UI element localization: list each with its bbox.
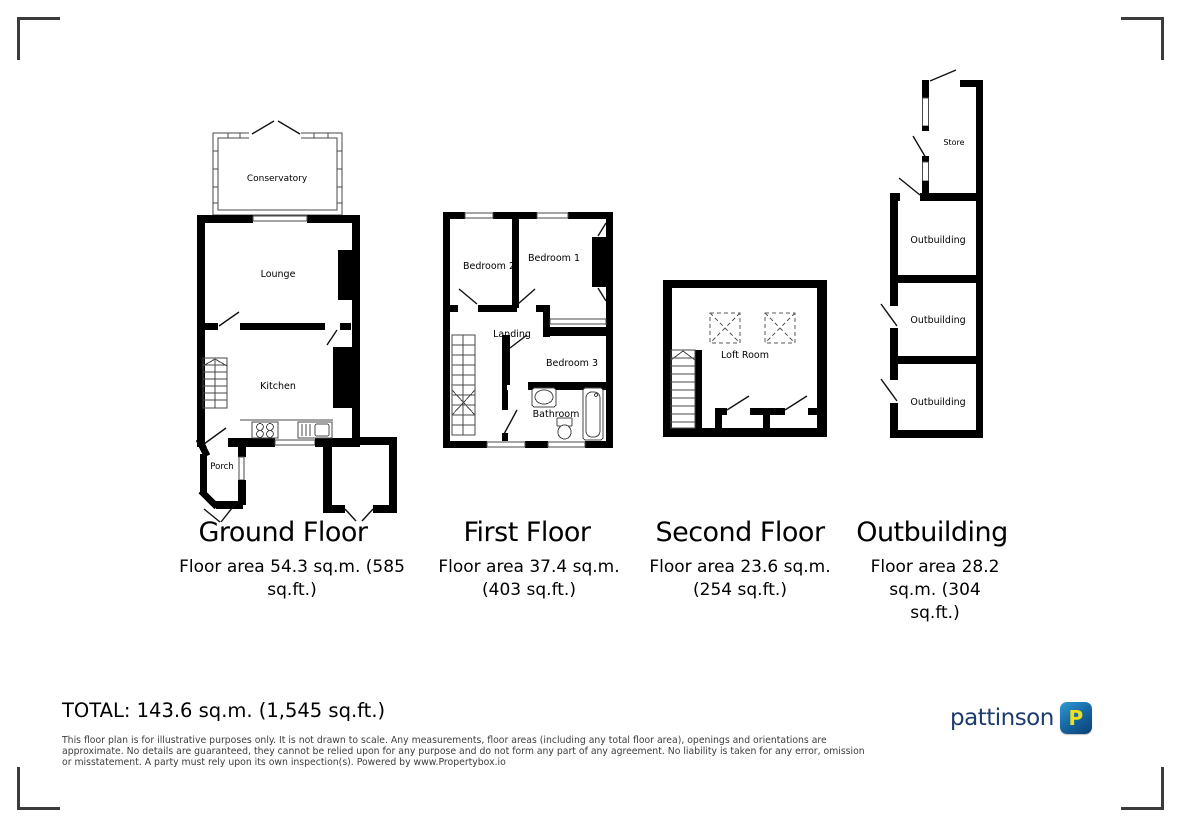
room-label: Kitchen xyxy=(260,381,296,392)
room-label: Outbuilding xyxy=(910,315,965,326)
bath-icon xyxy=(583,388,603,440)
eaves-storage-walls xyxy=(715,408,827,430)
disclaimer-text: This floor plan is for illustrative purp… xyxy=(62,735,865,768)
outbuilding-walls xyxy=(890,80,983,438)
ground-floor-area-caption: Floor area 54.3 sq.m. (585 sq.ft.) xyxy=(179,556,405,602)
ground-floor-plan: Conservatory Lounge xyxy=(190,113,412,527)
second-floor-plan: Loft Room xyxy=(655,270,845,450)
caption-line: sq.ft.) xyxy=(179,579,405,602)
stairs-icon xyxy=(452,335,475,435)
kitchen-window xyxy=(275,440,315,445)
room-label: Bathroom xyxy=(533,409,580,420)
porch-window xyxy=(239,457,244,480)
patio-door xyxy=(253,216,307,221)
second-floor-title: Second Floor xyxy=(655,517,824,548)
glazing-ticks xyxy=(213,133,342,203)
corner-mark-bottom-right xyxy=(1121,767,1164,810)
floorplan-page: { "page": { "background": "#ffffff", "wa… xyxy=(0,0,1181,826)
window xyxy=(548,442,585,447)
bulkhead xyxy=(550,319,606,324)
ground-floor-title: Ground Floor xyxy=(198,517,367,548)
window xyxy=(923,98,929,126)
brand-icon: P xyxy=(1060,702,1092,734)
pattinson-logo: pattinson P xyxy=(950,702,1092,734)
room-label: Store xyxy=(943,138,964,147)
room-label: Conservatory xyxy=(247,174,308,184)
room-label: Bedroom 3 xyxy=(546,358,598,369)
brand-name: pattinson xyxy=(950,705,1054,731)
rear-outbuilding-room xyxy=(323,437,397,521)
chimney-breast xyxy=(338,250,352,300)
room-kitchen: Kitchen xyxy=(203,358,333,438)
caption-line: sq.m. (304 xyxy=(871,579,1000,602)
first-floor-title: First Floor xyxy=(463,517,590,548)
room-label: Lounge xyxy=(261,269,296,280)
room-label: Bedroom 1 xyxy=(528,253,580,264)
toilet-icon xyxy=(557,418,572,439)
caption-line: sq.ft.) xyxy=(871,602,1000,625)
stairs-icon xyxy=(203,358,227,408)
room-label: Bedroom 2 xyxy=(463,261,515,272)
disclaimer-line: or misstatement. A party must rely upon … xyxy=(62,757,865,768)
window xyxy=(537,213,568,218)
brand-monogram: P xyxy=(1069,708,1084,728)
room-label: Porch xyxy=(210,462,233,472)
caption-line: (403 sq.ft.) xyxy=(438,579,619,602)
room-label: Landing xyxy=(493,329,531,340)
disclaimer-line: This floor plan is for illustrative purp… xyxy=(62,735,865,746)
caption-line: Floor area 23.6 sq.m. xyxy=(649,556,830,579)
corner-mark-top-right xyxy=(1121,17,1164,60)
corner-mark-bottom-left xyxy=(17,767,60,810)
corner-mark-top-left xyxy=(17,17,60,60)
total-floor-area: TOTAL: 143.6 sq.m. (1,545 sq.ft.) xyxy=(62,699,385,722)
chimney-breast xyxy=(592,237,606,287)
room-label: Outbuilding xyxy=(910,397,965,408)
caption-line: Floor area 28.2 xyxy=(871,556,1000,579)
disclaimer-line: approximate. No details are guaranteed, … xyxy=(62,746,865,757)
window xyxy=(923,162,929,181)
stairs-icon xyxy=(671,350,702,428)
caption-line: Floor area 37.4 sq.m. xyxy=(438,556,619,579)
second-floor-area-caption: Floor area 23.6 sq.m. (254 sq.ft.) xyxy=(649,556,830,602)
room-label: Outbuilding xyxy=(910,235,965,246)
first-floor-area-caption: Floor area 37.4 sq.m. (403 sq.ft.) xyxy=(438,556,619,602)
outbuilding-plan: Store Outbuilding Outbuilding Outbuildin… xyxy=(868,68,993,450)
chimney-breast xyxy=(333,347,352,408)
outbuilding-area-caption: Floor area 28.2 sq.m. (304 sq.ft.) xyxy=(871,556,1000,625)
caption-line: (254 sq.ft.) xyxy=(649,579,830,602)
window xyxy=(487,442,525,447)
room-label: Loft Room xyxy=(721,350,769,361)
first-floor-plan: Bedroom 2 Bedroom 1 Landing Bedroom 3 Ba… xyxy=(440,205,620,455)
room-lounge: Lounge xyxy=(261,269,296,280)
room-porch: Porch xyxy=(199,439,246,522)
caption-line: Floor area 54.3 sq.m. (585 xyxy=(179,556,405,579)
door-swings xyxy=(727,396,807,410)
window xyxy=(465,213,493,218)
room-conservatory: Conservatory xyxy=(213,121,342,215)
sink-icon xyxy=(298,422,332,438)
outbuilding-title: Outbuilding xyxy=(856,517,1008,548)
skylight-icon xyxy=(710,313,740,343)
sink-icon xyxy=(532,388,556,407)
skylight-icon xyxy=(765,313,795,343)
